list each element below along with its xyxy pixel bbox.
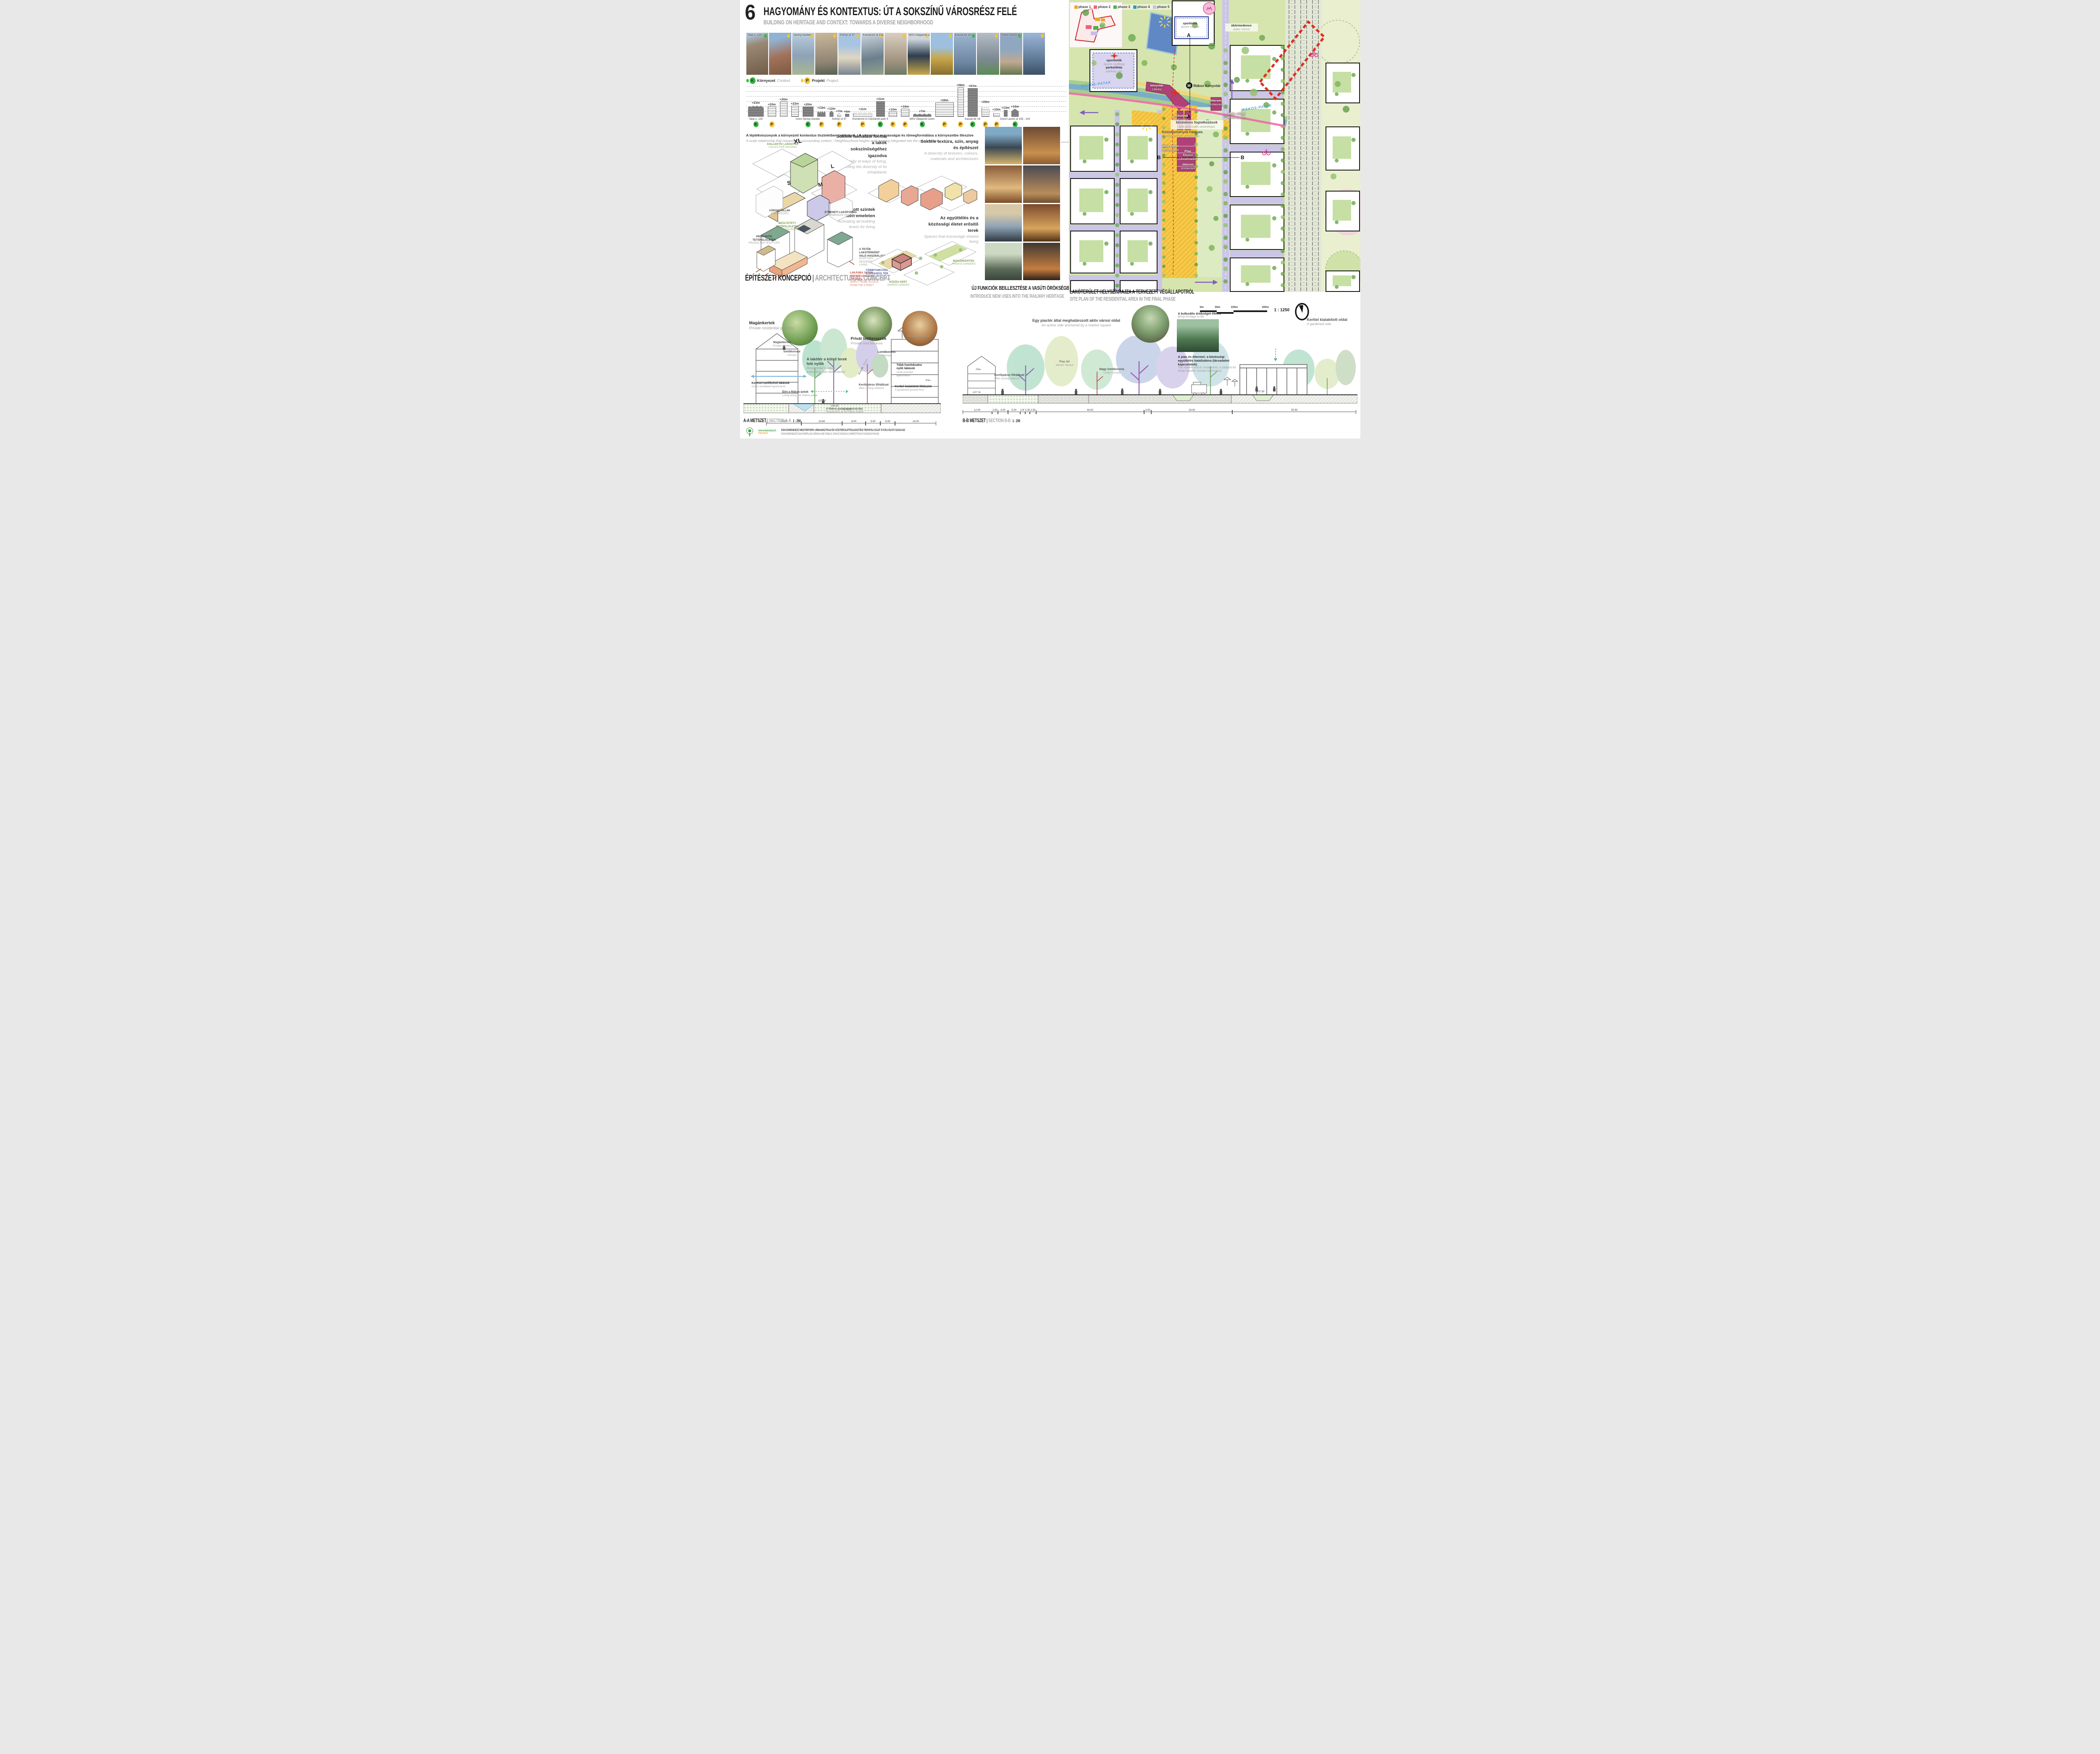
height-diagram-building: +20mAvico Spring GardenK (803, 102, 814, 117)
phase-legend-item: phase 5 (1153, 5, 1170, 9)
height-diagram-building: +13m (1004, 106, 1008, 117)
label-vegetated-roofs: BEÜLTETETT TETŐFELÜLETEKVEGETATED ROOFS (769, 222, 806, 231)
height-comparison-diagram: +23mTatai u. 124K+20mP+30m+22m+20mAvico … (746, 83, 1066, 129)
context-project-dot-icon (764, 34, 767, 38)
label-xl: XL (793, 137, 802, 145)
svg-text:A: A (1187, 32, 1191, 38)
siteplan-heading: LAKÓTERÜLET HELYSZÍNRAJZA A TERVEZETT VÉ… (1070, 288, 1247, 303)
dimension-segment: 2.50 (992, 410, 998, 414)
heritage-photo (985, 243, 1022, 280)
height-diagram-building: +16mSzent László út 156 - 143K (1011, 105, 1019, 117)
svg-text:107.59: 107.59 (1257, 391, 1265, 393)
context-project-dot-icon (903, 34, 906, 38)
aa-label-living-rakos: Élet a Rákos-patak Living along the Ráko… (782, 391, 818, 397)
photo-tile: Szőnyi út 47 (838, 33, 861, 75)
height-diagram-building: +20mP (768, 102, 776, 117)
map-label-restaurant-2: étteremrestaurant (1177, 163, 1200, 170)
bb-label-heritage-life: A kulturális örökséget éltetni Bring her… (1178, 312, 1225, 319)
dimension-segment: 3.00 (1144, 410, 1152, 414)
heritage-photo (1023, 204, 1060, 242)
competition-board: 6 HAGYOMÁNY ÉS KONTEXTUS: ÚT A SOKSZÍNŰ … (740, 0, 1360, 438)
aa-label-private-residential-gardens: Magánkertek Private residential gardens (749, 321, 794, 331)
kp-badge-icon: K (806, 121, 811, 127)
photo-tile: MÁV Gépjavító üzem (908, 33, 930, 75)
aa-label-private-roof-terraces: Privát tetőteraszok Private roof terrace… (851, 336, 887, 346)
height-diagram-building: +6m (845, 110, 849, 117)
context-project-dot-icon (856, 34, 859, 38)
aa-label-residential-exterior: A lakótér a külső terek felé nyílik Resi… (807, 357, 849, 374)
map-label-sports-rooftop-1: sporttetőkSports rooftop (1176, 22, 1205, 29)
heritage-photo (985, 204, 1022, 242)
metro-icon: M (1186, 82, 1192, 89)
section-bb-heading: B-B METSZET|SECTION B-B1 : 250 (963, 417, 1045, 423)
bb-label-cycling-network: Kerékpáros főhálózat Main cycling networ… (995, 374, 1024, 381)
photo-tile (931, 33, 953, 75)
dimension-segment: 14.00 (895, 421, 936, 425)
height-diagram-building: +58mP (958, 83, 964, 117)
phase-color-icon (1094, 5, 1097, 9)
section-aa-heading: A-A METSZET|SECTION A-A1 : 250 (743, 417, 825, 423)
heritage-photo (1023, 243, 1060, 280)
photo-tile (769, 33, 791, 75)
context-project-dot-icon (972, 34, 975, 38)
label-m: M (817, 181, 823, 188)
railway-section-heading: ÚJ FUNKCIÓK BEILLESZTÉSE A VASÚTI ÖRÖKSÉ… (952, 284, 1074, 300)
height-diagram-building: +25mP (982, 100, 990, 117)
kp-badge-icon: P (890, 121, 895, 127)
context-project-dot-icon (995, 34, 998, 38)
aa-label-canopy-2: Lombkorona Canopy (878, 351, 895, 357)
height-diagram-building: +22m (791, 102, 799, 117)
heritage-photo (1023, 165, 1060, 203)
kp-badge-icon: K (753, 121, 759, 127)
height-diagram-building: +16mP (901, 105, 909, 117)
aa-label-multi-oriented: Több homlokzatra nyíló lakások multi-ori… (897, 364, 926, 377)
photo-tile: Kassai tér 18 (954, 33, 976, 75)
section-bb-drawing: 107.74107.59 (963, 336, 1357, 408)
photo-tile (977, 33, 999, 75)
dimension-segment: 44.00 (1036, 410, 1144, 414)
dimension-segment: 5.00 (1008, 410, 1020, 414)
page-subtitle: BUILDING ON HERITAGE AND CONTEXT: TOWARD… (764, 19, 1006, 26)
height-diagram-building: +23mTatai u. 124K (748, 101, 764, 117)
dimension-segment: 2.50 (1030, 410, 1036, 414)
diagram-textures (866, 170, 977, 212)
kp-badge-icon: P (819, 121, 824, 127)
phase-legend-item: phase 4 (1133, 5, 1150, 9)
bb-label-active-side: Egy piactér által meghatározott aktív vá… (1022, 318, 1131, 327)
bb-label-market-square: Piac tér Market Square (1056, 360, 1074, 367)
aa-label-cycling-network: Kerékpáros főhálózat Main cycling networ… (859, 383, 889, 390)
map-label-parking-silo: sporttetőkSports rooftoop parkolóházpark… (1094, 59, 1134, 74)
photo-tile: Spring Garden (792, 33, 814, 75)
kp-badge-icon: P (994, 121, 999, 127)
kp-badge-icon: K (920, 121, 925, 127)
height-diagram-building: +57mKassai tér 18K (968, 84, 978, 117)
section-bb-photo-greenhouse (1177, 319, 1219, 352)
map-label-crafts: kézműves foglalkozások Arts and crafts w… (1171, 120, 1223, 129)
bb-label-gardened-side: Kerttel kialakított oldal A gardened sid… (1307, 318, 1348, 326)
phase-legend-item: phase 1 (1074, 5, 1091, 9)
svg-text:B: B (1241, 155, 1244, 160)
aa-label-cross-ventilated: Kereszt-szellőzésű lakások Cross-ventila… (752, 382, 790, 389)
reference-photo-strip: Tatai u. 124Spring GardenSzőnyi út 47Kom… (746, 33, 1045, 75)
height-diagram-building: +11mKomáromi út 10aP (853, 107, 872, 117)
context-project-dot-icon (787, 34, 790, 38)
phase-legend-item: phase 2 (1094, 5, 1110, 9)
aa-label-gardened-ground: Kerttel kialakított földszint A gardened… (895, 385, 932, 392)
photo-tile (1023, 33, 1045, 75)
railway-heritage-photos (985, 127, 1061, 280)
footer: RÁKOSRENDEZŐPROJEKT RÁKOSRENDEZŐ MESTERT… (744, 427, 958, 438)
context-dot-icon (746, 79, 749, 82)
concept-text-2: Sokféle textúra, szín, anyag és építésze… (916, 139, 979, 162)
kp-badge-icon: P (837, 121, 842, 127)
aa-label-private-gardens: Magánkertek Private gardens (773, 341, 792, 348)
phase-legend: phase 1phase 2phase 3phase 4phase 5 (1073, 4, 1171, 10)
kp-badge-icon: P (860, 121, 865, 127)
photo-tile: Szent László út 156 (1000, 33, 1022, 75)
leader-line (1061, 142, 1069, 142)
label-productive-rooftops: PRODUKTÍV TETŐFELÜLETEKPRODUCTIVE ROOFTO… (748, 235, 781, 245)
map-label-restaurant-1: étteremrestaurant (1205, 99, 1226, 106)
scale-ratio: 1 : 1250 (1274, 308, 1290, 312)
map-label-active-plaza-top: aktív előtéractive plaza (1224, 112, 1250, 119)
photo-tile: Komáromi út 10a (861, 33, 884, 75)
phase-color-icon (1113, 5, 1117, 9)
phase-color-icon (1153, 5, 1156, 9)
map-label-library: könyvtárLibrary (1147, 84, 1168, 91)
label-private-gardens: MAGÁNKERTEKPRIVATE GARDENS (949, 260, 979, 266)
height-bars: +23mTatai u. 124K+20mP+30m+22m+20mAvico … (748, 83, 1066, 117)
aa-co2-icon: ↓Co₂ (925, 379, 931, 382)
aa-label-inhabiting-roof: Inhabiting the roof (907, 335, 929, 338)
kp-badge-icon: K (970, 121, 975, 127)
dimension-segment: 5.00 (866, 421, 880, 425)
site-plan-map: AA BB (1069, 0, 1360, 292)
map-label-public-facilities: Közintézmények hálózata A public facilit… (1162, 130, 1213, 138)
bb-label-market-catalyst: A piac és éttermei: a közösségi együttél… (1178, 355, 1238, 373)
height-diagram-building: +12m (829, 107, 834, 117)
height-diagram-building: +30m (780, 97, 787, 117)
kp-badge-icon: P (942, 121, 947, 127)
section-bb-dimensions: 12.002.504.005.002.002.002.5044.003.0033… (963, 410, 1357, 414)
height-diagram-building: +7mMÁV Gépjavító üzemK (913, 109, 932, 117)
project-logo-tree-icon (744, 427, 755, 438)
kp-badge-icon: P (769, 121, 774, 127)
dimension-segment: 50.50 (1232, 410, 1356, 414)
dimension-segment: 33.00 (1151, 410, 1232, 414)
dimension-segment: 8.00 (842, 421, 866, 425)
kp-badge-icon: P (958, 121, 963, 127)
photo-tile (815, 33, 837, 75)
phase-legend-item: phase 3 (1113, 5, 1130, 9)
bb-label-large-canopy: Nagy lombkorona Large canopy (1100, 368, 1124, 375)
kp-badge-icon: P (903, 121, 908, 127)
height-diagram-building: +13mP (817, 106, 826, 117)
project-dot-icon (801, 79, 803, 82)
dimension-segment: 2.00 (1025, 410, 1030, 414)
height-diagram-building: +31mSárrét park 4K (876, 97, 885, 117)
concept-section-heading: ÉPÍTÉSZETI KONCEPCIÓ|ARCHITECTURAL CONCE… (745, 274, 953, 283)
board-number: 6 (745, 0, 756, 25)
aa-label-renaturation: A Rákos-patak renaturációja Renaturation… (826, 407, 864, 414)
context-project-dot-icon (833, 34, 836, 38)
project-logo-text: RÁKOSRENDEZŐPROJEKT (759, 430, 778, 435)
dimension-segment: 4.00 (998, 410, 1008, 414)
section-aa-photo-interior (902, 311, 937, 346)
phase-color-icon (1133, 5, 1137, 9)
kp-badge-icon: K (1013, 121, 1018, 127)
heritage-photo (985, 165, 1022, 203)
photo-tile: Tatai u. 124 (746, 33, 769, 75)
aa-label-canopy: lombkorona canopy (784, 350, 801, 357)
svg-text:B: B (1157, 155, 1161, 160)
map-label-water-mirror: ükörmedencewater mirror (1225, 24, 1258, 32)
photo-tile (885, 33, 907, 75)
heritage-photo (985, 127, 1022, 164)
kp-badge-icon: P (983, 121, 988, 127)
height-diagram-building: +10mP (889, 108, 897, 117)
metro-library-point: M Rákos Könyvtár (1186, 82, 1221, 89)
bb-co2-icon: ↓Co₂ (975, 368, 982, 371)
kp-badge-icon: K (878, 121, 883, 127)
map-label-market: Piac Market / foodmarket (1177, 150, 1200, 161)
dimension-segment: 12.00 (963, 410, 992, 414)
dimension-segment: 5.00 (880, 421, 895, 425)
context-project-dot-icon (949, 34, 952, 38)
context-project-dot-icon (1041, 34, 1044, 38)
height-diagram-building: +7mSzőnyi út 47P (837, 109, 841, 117)
height-diagram-building: +10mP (993, 108, 1000, 117)
section-aa-photo-roof-terrace (858, 307, 892, 341)
heritage-photo (1023, 127, 1060, 164)
phase-color-icon (1074, 5, 1078, 9)
height-diagram-building: +28mP (935, 98, 954, 117)
section-bb-photo-market (1131, 305, 1169, 343)
svg-text:107.74: 107.74 (973, 391, 981, 394)
